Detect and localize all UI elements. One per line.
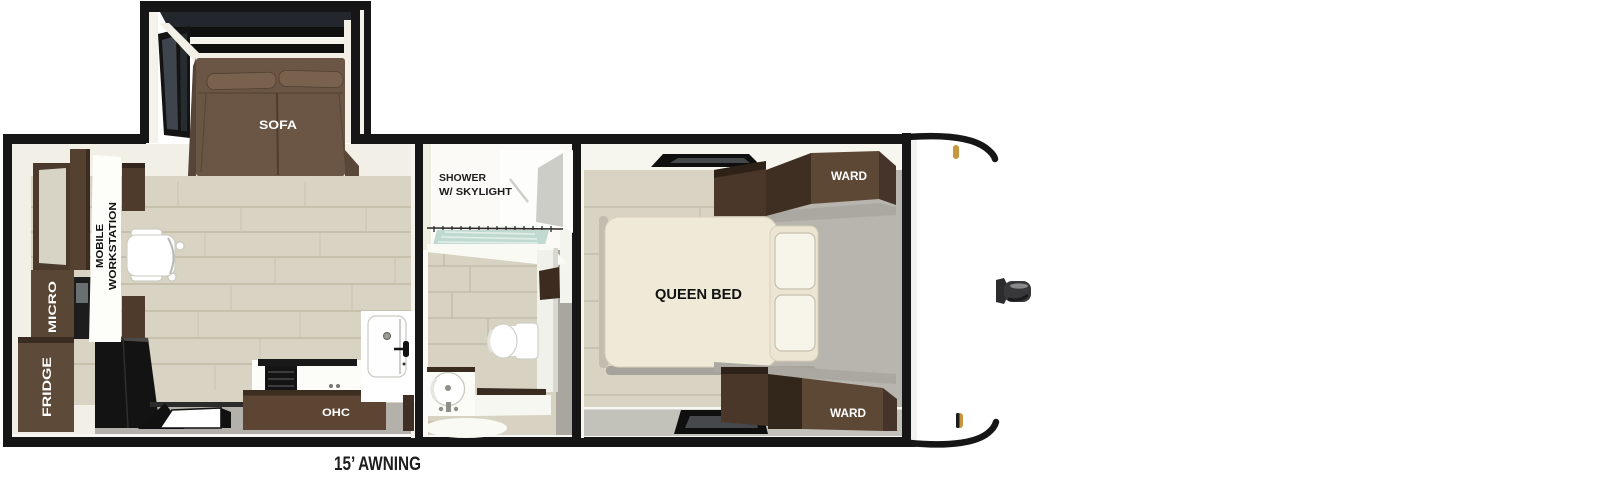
svg-text:MOBILE: MOBILE — [94, 224, 106, 268]
svg-text:OHC: OHC — [322, 407, 350, 419]
svg-text:WORKSTATION: WORKSTATION — [107, 202, 119, 290]
svg-text:FRIDGE: FRIDGE — [42, 357, 54, 417]
svg-text:MICRO: MICRO — [47, 280, 59, 333]
svg-text:WARD: WARD — [830, 406, 866, 420]
svg-text:QUEEN BED: QUEEN BED — [655, 287, 742, 303]
svg-text:15’ AWNING: 15’ AWNING — [334, 454, 421, 475]
svg-text:SOFA: SOFA — [259, 118, 297, 132]
svg-text:SHOWER: SHOWER — [439, 173, 487, 184]
svg-text:WARD: WARD — [831, 169, 867, 183]
svg-text:W/ SKYLIGHT: W/ SKYLIGHT — [439, 187, 512, 198]
